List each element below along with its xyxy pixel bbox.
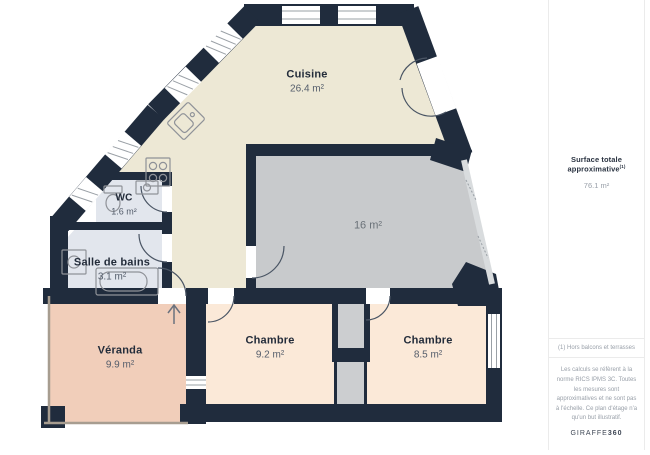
total-surface-block: Surface totale approximative(1) 76.1 m² <box>549 0 644 190</box>
room-label-salle-de-bains: Salle de bains 3.1 m² <box>74 255 150 284</box>
room-label-veranda: Véranda 9.9 m² <box>98 343 143 372</box>
window-top-2 <box>338 6 376 24</box>
shaft-floor <box>336 288 366 406</box>
window-chambre-2 <box>488 314 500 368</box>
room-label-wc: WC 1.6 m² <box>111 192 137 219</box>
total-surface-value: 76.1 m² <box>549 181 644 190</box>
floor-plan-page: Cuisine 26.4 m² WC 1.6 m² Salle de bains… <box>0 0 650 450</box>
footnote: (1) Hors balcons et terrasses <box>549 338 644 358</box>
disclaimer: Les calculs se réfèrent à la norme RICS … <box>549 358 644 430</box>
room-label-chambre-1: Chambre 9.2 m² <box>245 333 294 362</box>
window-top-1 <box>282 6 320 24</box>
info-sidebar: Surface totale approximative(1) 76.1 m² … <box>548 0 645 450</box>
window-veranda-wall <box>186 376 206 389</box>
room-label-cuisine: Cuisine 26.4 m² <box>286 67 327 96</box>
room-label-16m2: 16 m² <box>354 218 382 233</box>
total-surface-title: Surface totale approximative(1) <box>549 155 644 174</box>
sidebar-footer: (1) Hors balcons et terrasses Les calcul… <box>549 338 644 450</box>
brand-logo: GIRAFFE360 <box>549 430 644 450</box>
room-label-chambre-2: Chambre 8.5 m² <box>403 333 452 362</box>
